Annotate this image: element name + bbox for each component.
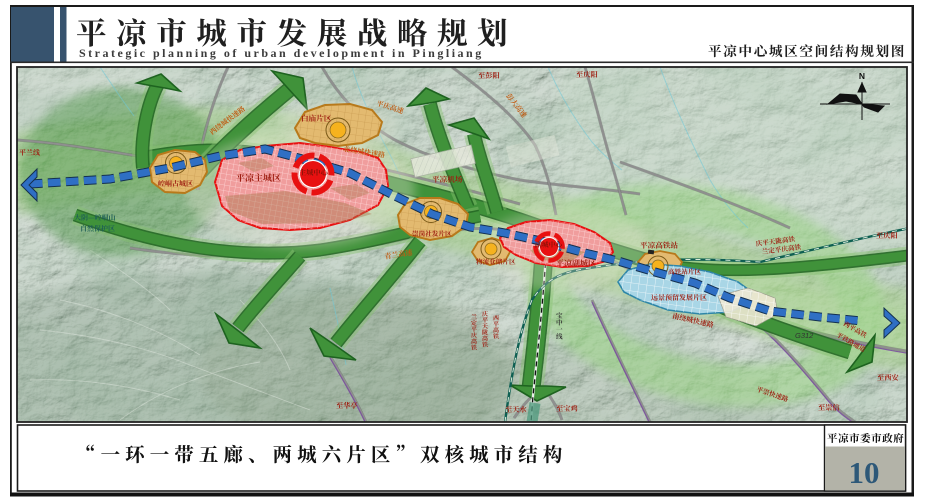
svg-text:G312: G312 <box>795 331 814 340</box>
svg-text:Strategic planning of urban de: Strategic planning of urban development … <box>79 46 484 60</box>
svg-text:10: 10 <box>849 455 880 490</box>
svg-text:N: N <box>859 71 865 81</box>
